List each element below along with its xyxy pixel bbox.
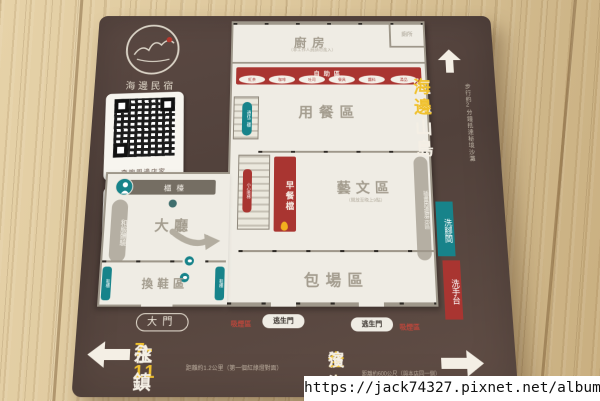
art-area-label: 藝文區 bbox=[300, 178, 431, 198]
shoe-cabinet-label: 鞋櫃 bbox=[215, 267, 225, 301]
stairs-upper: 通往二樓 bbox=[233, 96, 259, 139]
toilet-room: 廁所 bbox=[389, 23, 424, 48]
smoking-area-label: 吸煙區 bbox=[399, 321, 420, 332]
main-gate-badge: 大門 bbox=[135, 313, 188, 331]
wall bbox=[238, 250, 433, 252]
service-icon bbox=[169, 200, 177, 208]
flyer-card: 海邊民宿 查詢周邊店家 加入LINE好友 廚房 （非工作人員請勿進入） bbox=[71, 16, 518, 397]
counter-mascot-icon bbox=[115, 178, 134, 196]
qr-finder-icon bbox=[113, 143, 128, 158]
to-beach-highlight: 海邊 bbox=[408, 78, 435, 119]
art-area-note: （開放至晚上9點） bbox=[300, 198, 431, 204]
photo-of-floorplan-flyer: 海邊民宿 查詢周邊店家 加入LINE好友 廚房 （非工作人員請勿進入） bbox=[0, 0, 600, 401]
qr-code-shops bbox=[113, 97, 175, 157]
wall bbox=[102, 260, 226, 262]
stairs-upper-note: 通往二樓 bbox=[242, 102, 252, 136]
buffet-item: 餐具 bbox=[329, 75, 355, 83]
to-beach-note: 步行約2分鐘抵達秘境沙灘 bbox=[462, 84, 481, 238]
wall bbox=[258, 151, 429, 153]
qr-finder-icon bbox=[160, 97, 175, 111]
buffet-item: 紅茶 bbox=[239, 75, 265, 83]
floorplan-wing: 櫃檯 和服體驗 大廳 換鞋區 鞋櫃 鞋櫃 bbox=[97, 172, 230, 307]
counter-label: 櫃檯 bbox=[141, 183, 212, 194]
door-opening bbox=[359, 302, 384, 306]
door-opening bbox=[271, 302, 296, 306]
buffet-item: 醬料 bbox=[359, 75, 385, 83]
buffet-item: 咖啡 bbox=[269, 75, 295, 83]
watermark-url: https://jack74327.pixnet.net/album bbox=[304, 376, 600, 401]
toilet-label: 廁所 bbox=[391, 30, 424, 38]
smoking-area-label: 吸煙區 bbox=[231, 317, 252, 328]
qr-card-shops: 查詢周邊店家 bbox=[103, 91, 184, 181]
brand-calligraphy: 海邊民宿 bbox=[110, 78, 192, 92]
floorplan-main: 廚房 （非工作人員請勿進入） 廁所 自助區 紅茶 咖啡 吐司 餐具 醬料 湯品 … bbox=[225, 21, 439, 306]
dining-label: 用餐區 bbox=[231, 102, 427, 122]
to-7-11-note: 距離約1.2公里（第一個紅綠燈對面） bbox=[138, 363, 331, 372]
display-area-label: 插畫周邊展示區 bbox=[413, 157, 432, 261]
up-arrow-icon bbox=[437, 49, 461, 72]
reception-counter: 櫃檯 bbox=[123, 180, 216, 195]
stairs-lower-note: 小心階梯 bbox=[242, 169, 252, 212]
slipper-icon bbox=[184, 256, 194, 265]
kitchen-note: （非工作人員請勿進入） bbox=[233, 48, 392, 53]
hand-wash-badge: 洗手台 bbox=[442, 260, 463, 319]
escape-door-badge: 逃生門 bbox=[351, 317, 394, 331]
main-gate-opening bbox=[141, 302, 173, 306]
self-service-bar: 自助區 紅茶 咖啡 吐司 餐具 醬料 湯品 bbox=[236, 67, 422, 84]
foot-wash-badge: 洗腳間 bbox=[435, 202, 455, 257]
stairs-lower: 小心階梯 bbox=[237, 155, 270, 230]
banquet-label: 包場區 bbox=[238, 269, 436, 291]
lobby-arrow-icon bbox=[169, 226, 221, 253]
wall bbox=[227, 302, 436, 304]
escape-door-badge: 逃生門 bbox=[262, 314, 304, 328]
shoe-area-label: 換鞋區 bbox=[121, 275, 209, 292]
left-arrow-icon bbox=[86, 341, 130, 368]
breakfast-counter: 早餐檔 bbox=[274, 157, 296, 232]
wall bbox=[233, 62, 425, 64]
kimono-label: 和服體驗 bbox=[108, 200, 128, 263]
qr-finder-icon bbox=[114, 99, 129, 113]
flame-icon bbox=[281, 222, 288, 231]
shoe-cabinet-label: 鞋櫃 bbox=[101, 267, 113, 301]
island-logo-icon bbox=[124, 25, 180, 75]
buffet-item: 吐司 bbox=[299, 75, 325, 83]
